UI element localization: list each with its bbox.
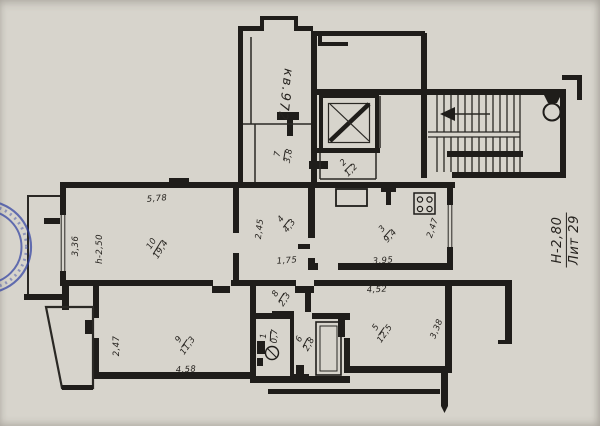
- wall-openings: [60, 171, 453, 338]
- toilet-icon: [292, 365, 309, 380]
- kitchen-cupboard-icon: [336, 189, 367, 206]
- staircase-icon: [428, 95, 523, 172]
- window-lines: [61, 205, 452, 271]
- garbage-chute-icon: [544, 95, 562, 121]
- balcony-bottom-left: [46, 307, 93, 390]
- floor-plan-drawing: [0, 0, 600, 426]
- walls: [60, 16, 582, 413]
- floor-plan-scan: 10 19,4 4 4,3 3 9,4 2 1,2 7 3,8 5 12,5 9…: [0, 0, 600, 426]
- stamp-mark: [0, 201, 31, 293]
- sink-icon: [381, 188, 396, 205]
- door-marks: [44, 112, 345, 337]
- washbasin-icon: [257, 341, 279, 366]
- stove-icon: [414, 193, 435, 214]
- elevator-icon: [321, 96, 377, 150]
- bathtub-icon: [316, 322, 341, 375]
